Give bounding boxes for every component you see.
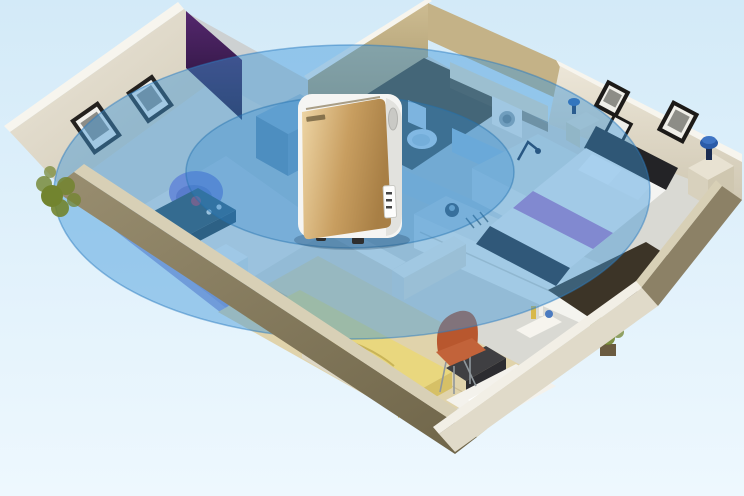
handle-icon: [389, 108, 398, 130]
lamp-highlight: [702, 136, 716, 144]
bottle: [545, 310, 553, 318]
control-panel: [383, 185, 397, 218]
scene-canvas: [0, 0, 744, 496]
purifier-foot: [352, 237, 364, 244]
air-purifier: [294, 94, 410, 250]
floorplan-render: [0, 0, 744, 496]
